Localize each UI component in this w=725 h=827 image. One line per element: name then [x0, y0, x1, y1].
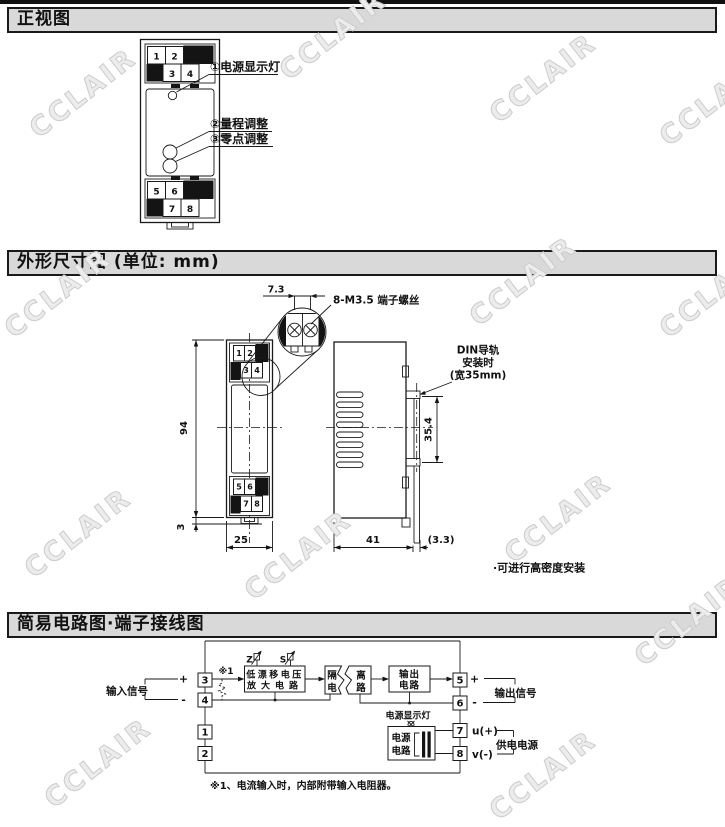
terminal-number: 5: [457, 676, 464, 687]
section-title-circuit: 简易电路图·端子接线图: [17, 614, 204, 634]
terminal-number: 4: [202, 696, 209, 707]
amplifier-block: 低漂移电压 放大电路: [245, 666, 306, 692]
section-title-outline: 外形尺寸图 (单位: mm): [17, 252, 220, 272]
terminal-number: 2: [171, 53, 177, 63]
din-rail: [406, 383, 420, 543]
callout-zero-adjust: ③零点调整: [210, 131, 268, 146]
top-rule: [0, 0, 725, 4]
dim-35-4-label: 35.4: [424, 417, 435, 442]
circuit-diagram: + - 输入信号 3 4 1 2 ※1 低漂移电压 放大电路 Z S: [0, 638, 725, 804]
isolation-block: 隔 电 离 路: [325, 666, 371, 694]
dim-3-3: (3.3): [420, 535, 454, 552]
terminal-number: 3: [169, 70, 175, 80]
dim-41-label: 41: [366, 535, 380, 546]
dim-3-label: 3: [176, 523, 187, 530]
output-circuit-block: 输出 电路: [389, 666, 430, 692]
out-label-1: 输出: [399, 669, 420, 681]
span-adjust-hole: [163, 145, 177, 159]
callout-power-led: ①电源显示灯: [210, 59, 280, 74]
input-plus: +: [179, 673, 188, 686]
terminal-number: 5: [153, 188, 159, 198]
dim-94-label: 94: [179, 421, 190, 435]
power-lamp-label: 电源显示灯: [385, 710, 430, 722]
panel-screw-mark: [190, 177, 199, 181]
outline-side-view: [334, 342, 420, 543]
terminal-number: 5: [236, 483, 242, 492]
dim-7-3-label: 7.3: [268, 285, 285, 296]
amp-label-1: 低漂移电压: [245, 669, 304, 681]
zero-trimmer: Z: [246, 651, 261, 667]
circuit-note: ※1、电流输入时，内部附带输入电阻器。: [210, 779, 397, 792]
output-minus: -: [472, 696, 477, 709]
din-label-2: 安装时: [462, 356, 494, 369]
input-signal-label: 输入信号: [106, 685, 148, 698]
datasheet-page: { "watermark": {"text": "CCLAIR"}, "sect…: [0, 0, 725, 804]
dim-3-3-label: (3.3): [428, 535, 455, 546]
terminal-number: 4: [187, 70, 193, 80]
amp-label-2: 放大电路: [246, 680, 303, 692]
terminal-number: 4: [254, 366, 260, 375]
power-lamp-group: 电源显示灯: [385, 710, 430, 729]
terminal-number: 6: [457, 699, 464, 710]
front-view-diagram: 1 2 3 4 5 6 7 8 ①电源显示灯: [0, 33, 725, 240]
terminal-number: 2: [202, 749, 209, 760]
section-title-front-view: 正视图: [17, 9, 71, 29]
din-clip-tab: [167, 223, 193, 230]
terminal-number: 3: [202, 676, 209, 687]
din-label-3: (宽35mm): [450, 369, 507, 382]
span-trimmer: S: [280, 651, 295, 667]
callout-span-adjust: ②量程调整: [210, 116, 268, 131]
output-plus: +: [470, 673, 479, 686]
terminal-number: 6: [247, 483, 253, 492]
output-signal-group: + - 输出信号: [470, 673, 537, 710]
terminal-number: 8: [254, 500, 260, 509]
outline-dimension-diagram: 1 2 3 4 5 6 7 8 94: [0, 278, 725, 612]
dim-7-3: 7.3: [263, 285, 325, 311]
terminal-number: 7: [169, 205, 175, 215]
panel-screw-mark: [171, 177, 180, 181]
terminal-block-bottom: 5 6 7 8: [230, 477, 270, 516]
iso-char-3: 离: [356, 670, 366, 682]
din-label-1: DIN导轨: [457, 344, 500, 357]
terminal-number: 8: [457, 749, 464, 760]
terminal-block-bottom: 5 6 7 8: [145, 179, 215, 218]
out-label-2: 电路: [399, 680, 420, 692]
output-signal-label: 输出信号: [495, 687, 537, 700]
front-panel: [146, 89, 214, 176]
section-header-circuit: 简易电路图·端子接线图: [7, 612, 717, 638]
input-signal-group: + - 输入信号: [106, 673, 188, 707]
din-rail-callout: DIN导轨 安装时 (宽35mm): [420, 344, 507, 395]
callout-leader: [421, 382, 452, 394]
iso-char-1: 隔: [327, 670, 337, 682]
v-minus-label: v(-): [472, 749, 493, 761]
terminal-number: 8: [187, 205, 193, 215]
psu-label-2: 电路: [391, 745, 411, 757]
terminal-number: 6: [171, 188, 177, 198]
zero-adjust-hole: [163, 159, 177, 173]
screw-label: 8-M3.5 端子螺丝: [333, 294, 420, 307]
input-return-bus: [212, 694, 330, 700]
panel-screw-mark: [190, 84, 199, 88]
terminal-block-top: 1 2 3 4: [230, 343, 270, 382]
panel-screw-mark: [171, 84, 180, 88]
bottom-foot: [402, 518, 410, 527]
section-header-outline: 外形尺寸图 (单位: mm): [7, 250, 717, 276]
supply-power-group: u(+) v(-) 供电电源: [472, 726, 538, 762]
input-minus: -: [181, 694, 186, 707]
callout-leader: [176, 147, 210, 162]
psu-label-1: 电源: [391, 732, 411, 744]
terminal-screw-detail: [277, 314, 328, 353]
dim-35-4: 35.4: [422, 397, 443, 463]
section-header-front-view: 正视图: [7, 7, 717, 33]
dim-41: 41: [334, 522, 413, 552]
terminal-number: 7: [243, 500, 249, 509]
terminal-number: 1: [236, 349, 242, 358]
iso-char-4: 路: [356, 682, 366, 694]
terminal-number: 7: [457, 726, 464, 737]
terminal-number: 1: [153, 53, 159, 63]
dim-25-label: 25: [234, 535, 248, 546]
side-body: [334, 342, 406, 518]
callout-leader: [176, 132, 209, 149]
screw-callout: 8-M3.5 端子螺丝: [311, 294, 420, 325]
internal-resistor: [219, 679, 226, 700]
power-supply-block: 电源 电路: [388, 727, 435, 761]
dim-94: 94: [179, 340, 224, 518]
front-view-device: 1 2 3 4 5 6 7 8: [141, 40, 220, 230]
din-clip-tab-inner: [172, 223, 189, 228]
iso-char-2: 电: [327, 682, 337, 694]
supply-power-label: 供电电源: [495, 739, 538, 752]
output-return-bus: [360, 694, 453, 703]
power-led: [168, 91, 176, 99]
terminal-number: 1: [202, 728, 209, 739]
u-plus-label: u(+): [472, 726, 498, 738]
ref-mark: ※1: [218, 666, 233, 677]
vent-slots: [337, 392, 364, 467]
mounting-note: ·可进行高密度安装: [493, 561, 585, 575]
